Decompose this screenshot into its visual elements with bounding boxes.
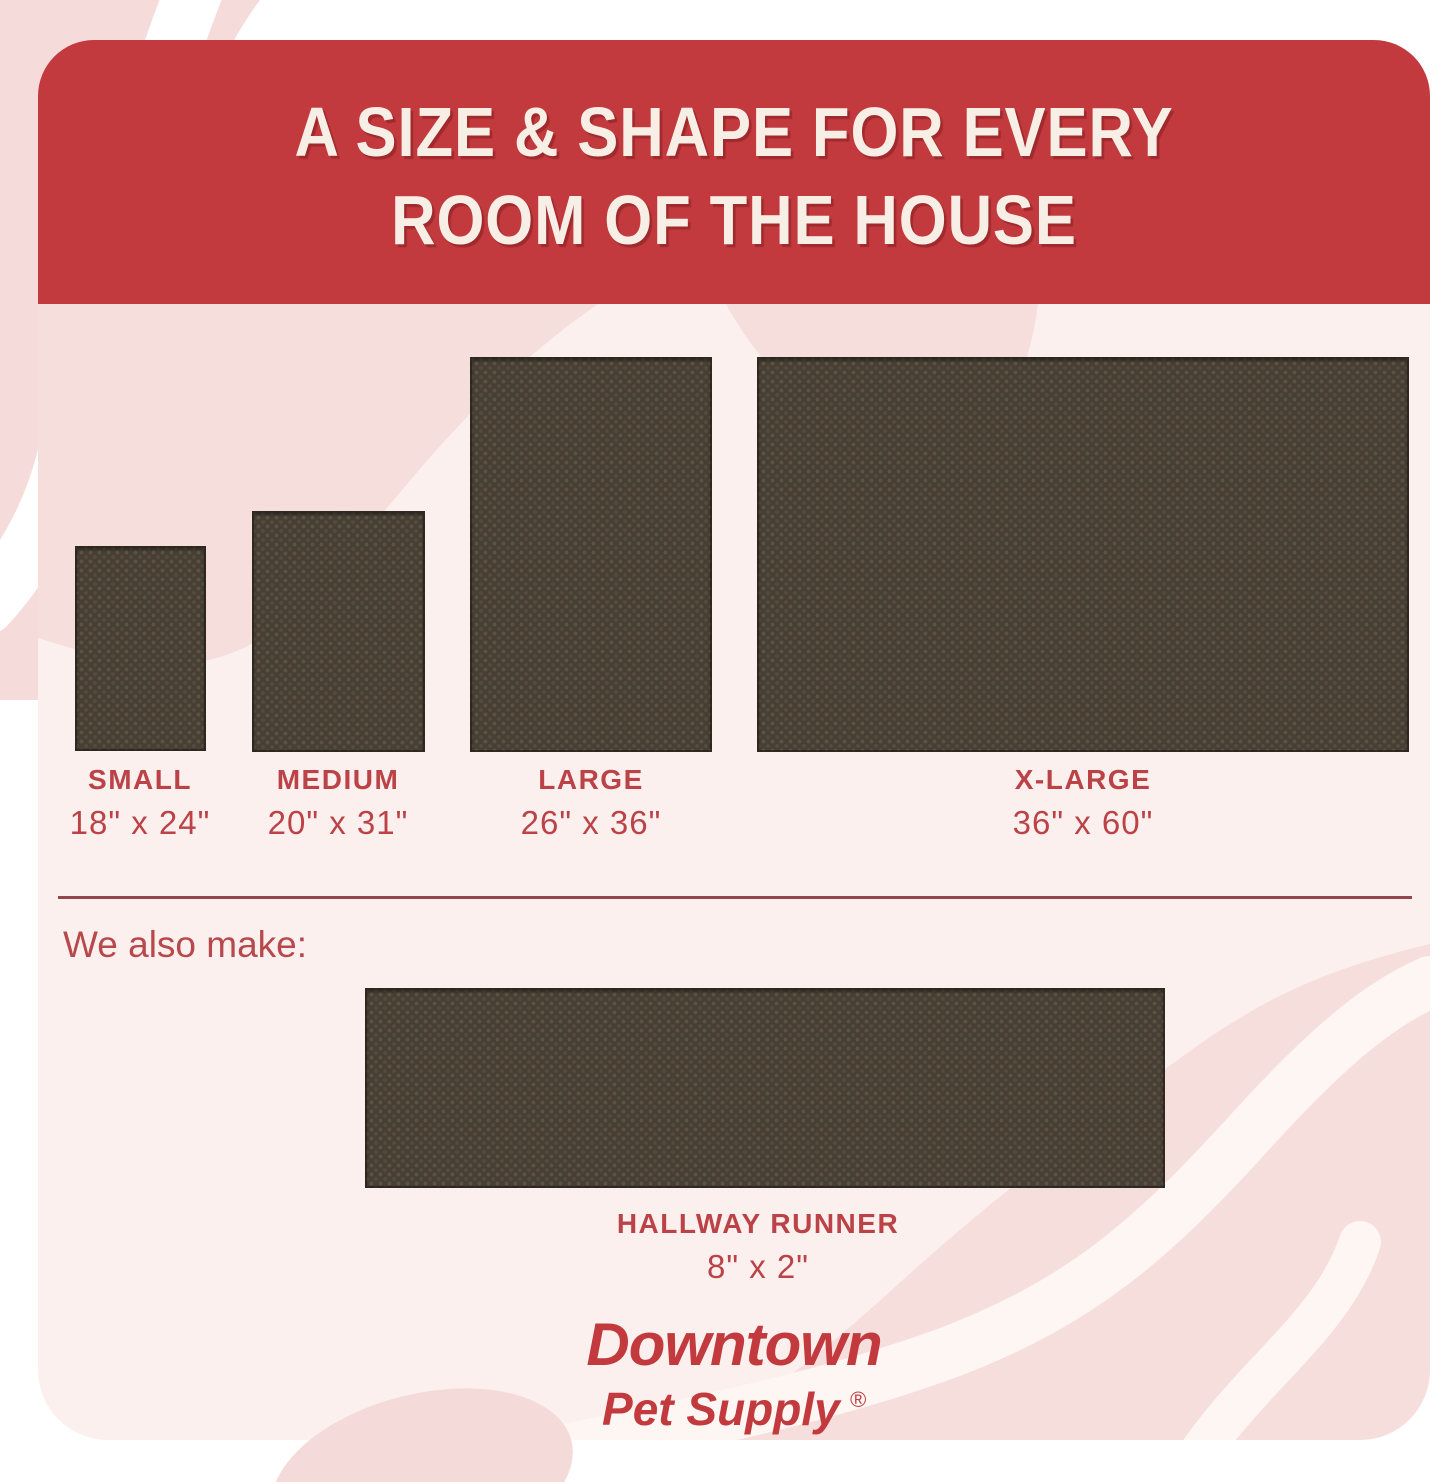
size-dims-runner: 8" x 2" (598, 1248, 918, 1286)
section-divider (58, 896, 1412, 899)
mat-medium (252, 511, 425, 752)
infographic-page: A SIZE & SHAPE FOR EVERY ROOM OF THE HOU… (0, 0, 1445, 1482)
mat-large (470, 357, 712, 752)
header-banner: A SIZE & SHAPE FOR EVERY ROOM OF THE HOU… (38, 40, 1430, 304)
label-xlarge: X-LARGE 36" x 60" (923, 764, 1243, 842)
size-name-xlarge: X-LARGE (923, 764, 1243, 796)
size-name-large: LARGE (431, 764, 751, 796)
page-title: A SIZE & SHAPE FOR EVERY ROOM OF THE HOU… (38, 40, 1430, 264)
mat-hallway-runner (365, 988, 1165, 1188)
brand-name: Downtown (38, 1316, 1430, 1374)
size-dims-xlarge: 36" x 60" (923, 804, 1243, 842)
brand-logo: Downtown Pet Supply® (38, 1316, 1430, 1435)
mat-small (75, 546, 206, 751)
size-dims-large: 26" x 36" (431, 804, 751, 842)
registered-trademark-symbol: ® (850, 1387, 866, 1412)
brand-subtitle: Pet Supply® (38, 1374, 1430, 1435)
content-area: SMALL 18" x 24" MEDIUM 20" x 31" LARGE 2… (38, 304, 1430, 1440)
mat-xlarge (757, 357, 1409, 752)
also-make-text: We also make: (63, 924, 307, 966)
size-name-runner: HALLWAY RUNNER (598, 1208, 918, 1240)
page-title-line1: A SIZE & SHAPE FOR EVERY (122, 88, 1347, 176)
label-large: LARGE 26" x 36" (431, 764, 751, 842)
label-hallway-runner: HALLWAY RUNNER 8" x 2" (598, 1208, 918, 1286)
brand-subtitle-text: Pet Supply (602, 1383, 840, 1435)
page-title-line2: ROOM OF THE HOUSE (122, 176, 1347, 264)
infographic-card: A SIZE & SHAPE FOR EVERY ROOM OF THE HOU… (38, 40, 1430, 1440)
